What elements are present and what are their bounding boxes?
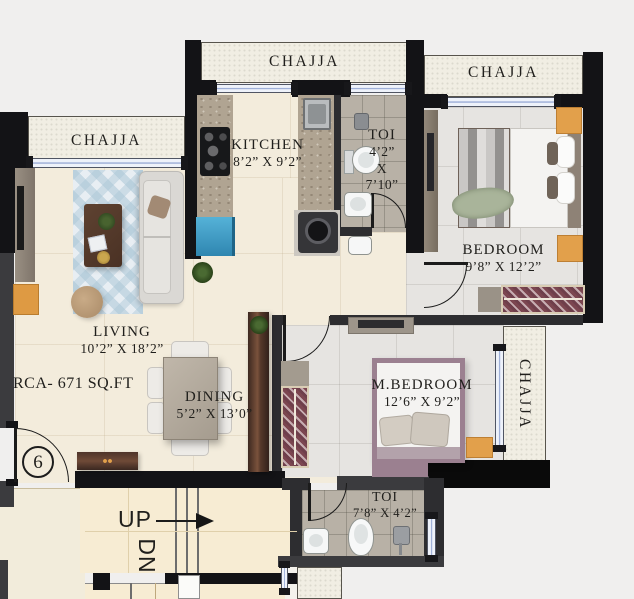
kitchen-window xyxy=(216,84,292,93)
bedroom-wardrobe-divider xyxy=(504,298,582,300)
kitchen-name: KITCHEN xyxy=(205,136,330,154)
toilet-bottom-name: TOI xyxy=(340,489,430,506)
toilet-top-window xyxy=(350,84,406,93)
stair-lower-line-1 xyxy=(130,583,132,599)
chajja-top-right-label: CHAJJA xyxy=(424,64,583,83)
sofa-seat-divider xyxy=(143,236,171,238)
wall-stairs-lower-block xyxy=(93,573,110,590)
washbasin-bottom-bowl xyxy=(309,534,323,547)
area-label: RCA- 671 SQ.FT xyxy=(13,374,145,394)
washing-machine-drum xyxy=(305,218,331,244)
entrance-door-leaf xyxy=(14,428,17,482)
mbedroom-dims: 12’6” X 9’2” xyxy=(338,394,506,410)
kitchen-dims: 8’2” X 9’2” xyxy=(205,154,330,170)
living-window xyxy=(32,158,182,168)
wall-stairs-top xyxy=(75,471,285,488)
bedroom-name: BEDROOM xyxy=(424,241,583,259)
wall-toilet-top-bottom xyxy=(340,227,372,236)
dn-label: DN xyxy=(133,528,161,584)
toilet-top-length: 7’10” xyxy=(350,177,414,193)
mbedroom-door-leaf xyxy=(283,315,286,363)
mbedroom-dresser-tv xyxy=(358,320,404,328)
lounge-chair xyxy=(71,286,103,318)
bedroom-window xyxy=(447,97,555,107)
up-arrow-line xyxy=(156,520,200,522)
living-cabinet-orange xyxy=(13,284,39,315)
bedroom-pillow-2 xyxy=(556,172,575,204)
toilet-bottom-dims: 7’8” X 4’2” xyxy=(340,506,430,521)
coffee-table-tray xyxy=(97,251,110,264)
mbedroom-pillow-2 xyxy=(410,411,451,447)
geyser-stem xyxy=(399,543,402,555)
toilet-bottom-window xyxy=(427,518,436,556)
floor-plan: UP DN 6 CHAJJA CHAJJA CHAJJA CHAJJA CHAJ… xyxy=(0,0,634,599)
mbedroom-stone-block xyxy=(281,361,309,386)
chajja-bottom-label: CHAJJA xyxy=(298,575,343,599)
cabinet-plant xyxy=(250,316,268,334)
mbedroom-footboard xyxy=(372,460,428,477)
kitchen-sink-basin xyxy=(308,104,326,124)
chajja-top-label: CHAJJA xyxy=(201,53,408,72)
dining-name: DINING xyxy=(152,388,277,406)
toilet-top-width: 4’2” xyxy=(350,144,414,160)
mbedroom-wardrobe-divider xyxy=(294,389,296,465)
toilet-bottom-label: TOI 7’8” X 4’2” xyxy=(340,489,430,521)
living-label: LIVING 10’2” X 18’2” xyxy=(58,323,186,358)
living-name: LIVING xyxy=(58,323,186,341)
unit-number-badge: 6 xyxy=(22,446,54,478)
entrance-door-top-cap xyxy=(6,421,18,428)
wall-mbedroom-bottom-gray xyxy=(337,476,429,490)
dining-label: DINING 5’2” X 13’0” xyxy=(152,388,277,423)
stair-lower-line-2 xyxy=(155,583,156,599)
wall-toilet-bottom-left xyxy=(290,488,302,566)
mbedroom-name: M.BEDROOM xyxy=(338,376,506,394)
passage-basin xyxy=(348,236,372,255)
chajja-right-label: CHAJJA xyxy=(503,326,546,463)
coffee-table-plant xyxy=(98,213,115,230)
bedroom-mirror xyxy=(427,133,434,191)
entry-console-knobs xyxy=(103,458,112,464)
refrigerator xyxy=(196,217,235,256)
toilet-top-separator: X xyxy=(350,161,414,177)
bedroom-cushion-2 xyxy=(547,176,558,199)
chajja-bottom-window xyxy=(281,567,288,589)
tv-screen xyxy=(17,186,24,250)
toilet-bottom-door-leaf xyxy=(308,483,311,521)
mbedroom-stool xyxy=(466,437,493,458)
washbasin-top-bowl xyxy=(350,197,366,211)
chajja-left-label: CHAJJA xyxy=(28,132,185,151)
toilet-top-label: TOI 4’2” X 7’10” xyxy=(350,126,414,194)
dining-dims: 5’2” X 13’0” xyxy=(152,406,277,422)
bedroom-nightstand-top xyxy=(556,107,582,134)
bedroom-stone-block xyxy=(478,287,501,312)
stair-lower-door xyxy=(178,575,200,599)
mbedroom-blanket xyxy=(377,447,460,459)
living-dims: 10’2” X 18’2” xyxy=(58,341,186,357)
bedroom-dims: 9’8” X 12’2” xyxy=(424,259,583,275)
mbedroom-label: M.BEDROOM 12’6” X 9’2” xyxy=(338,376,506,411)
wall-bedroom-right xyxy=(583,52,603,323)
toilet-top-name: TOI xyxy=(350,126,414,144)
landing-wood-strip xyxy=(53,488,75,599)
bedroom-label: BEDROOM 9’8” X 12’2” xyxy=(424,241,583,276)
bedroom-pillow-1 xyxy=(556,136,575,168)
bedroom-cushion-1 xyxy=(547,142,558,165)
entry-plant xyxy=(192,262,213,283)
wall-toilet-bottom-bottom xyxy=(278,556,444,567)
wall-mbedroom-bottom-black xyxy=(427,460,550,488)
wall-left-mid xyxy=(0,253,14,428)
wall-left-bottom-stub xyxy=(0,560,8,599)
kitchen-label: KITCHEN 8’2” X 9’2” xyxy=(205,136,330,171)
toilet-bottom-bowl-inner xyxy=(354,524,368,544)
up-arrow-head xyxy=(196,513,214,529)
